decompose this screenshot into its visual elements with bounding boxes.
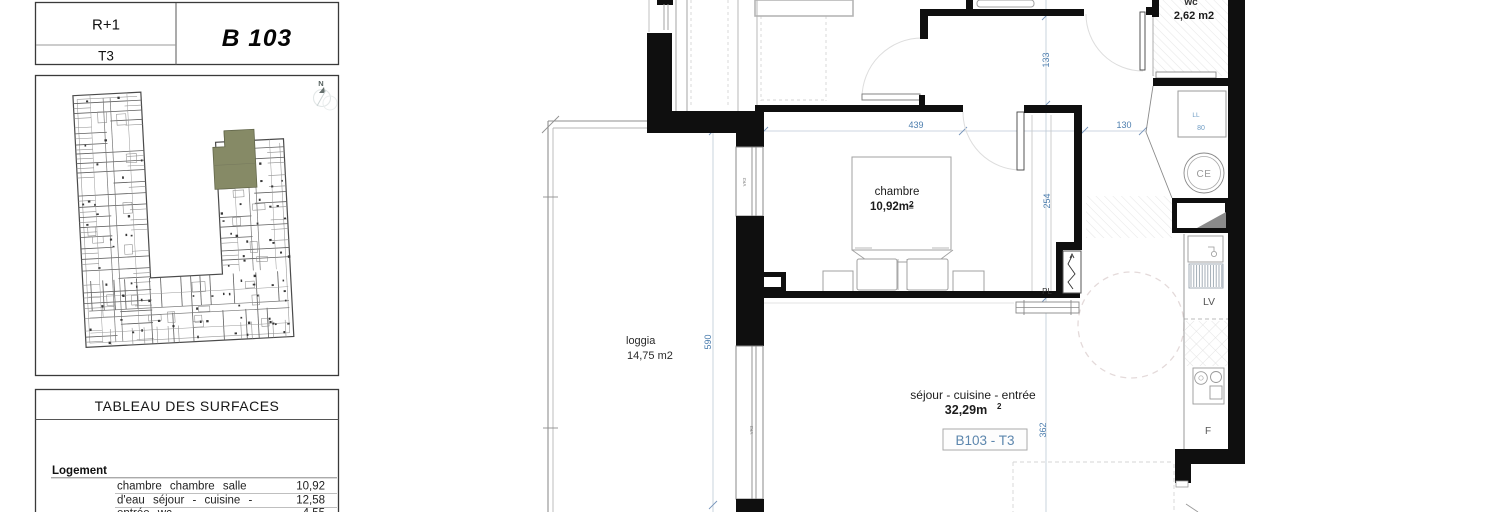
svg-text:12,58: 12,58 [296,495,325,507]
svg-text:B103 - T3: B103 - T3 [955,433,1014,448]
svg-text:F: F [1205,426,1211,437]
svg-text:10,92m2=: 10,92m2= [870,199,914,213]
svg-text:32,29m: 32,29m [945,403,987,417]
svg-text:N: N [318,79,323,88]
svg-text:10,92: 10,92 [296,481,325,493]
svg-text:133: 133 [1041,52,1051,67]
svg-text:entrée wc: entrée wc [117,508,172,512]
svg-text:loggia: loggia [626,335,656,347]
svg-text:80: 80 [1197,125,1205,132]
svg-text:4,55: 4,55 [303,508,325,512]
svg-text:439: 439 [908,120,923,130]
svg-text:362: 362 [1038,422,1048,437]
svg-text:LL: LL [1192,112,1200,119]
svg-text:chambre: chambre [875,186,920,198]
svg-text:590: 590 [703,334,713,349]
svg-text:R+1: R+1 [92,17,120,34]
svg-text:wc: wc [1183,0,1198,8]
svg-text:PL: PL [1042,287,1052,296]
svg-text:chambre chambre salle: chambre chambre salle [117,481,247,493]
svg-text:130: 130 [1116,120,1131,130]
svg-text:2: 2 [997,402,1002,411]
svg-text:LV: LV [1203,296,1215,308]
svg-text:VR3: VR3 [749,425,754,434]
svg-text:CE: CE [1197,169,1212,180]
svg-text:B 103: B 103 [222,25,292,52]
svg-text:TABLEAU DES SURFACES: TABLEAU DES SURFACES [95,398,280,414]
svg-text:VR3: VR3 [742,177,747,186]
svg-text:séjour - cuisine - entrée: séjour - cuisine - entrée [910,388,1036,402]
svg-text:2,62 m2: 2,62 m2 [1174,10,1214,22]
svg-text:254: 254 [1042,193,1052,208]
svg-text:Logement: Logement [52,465,107,477]
svg-text:T3: T3 [98,49,114,64]
svg-text:d'eau séjour - cuisine -: d'eau séjour - cuisine - [117,495,253,507]
svg-text:14,75 m2: 14,75 m2 [627,350,673,362]
